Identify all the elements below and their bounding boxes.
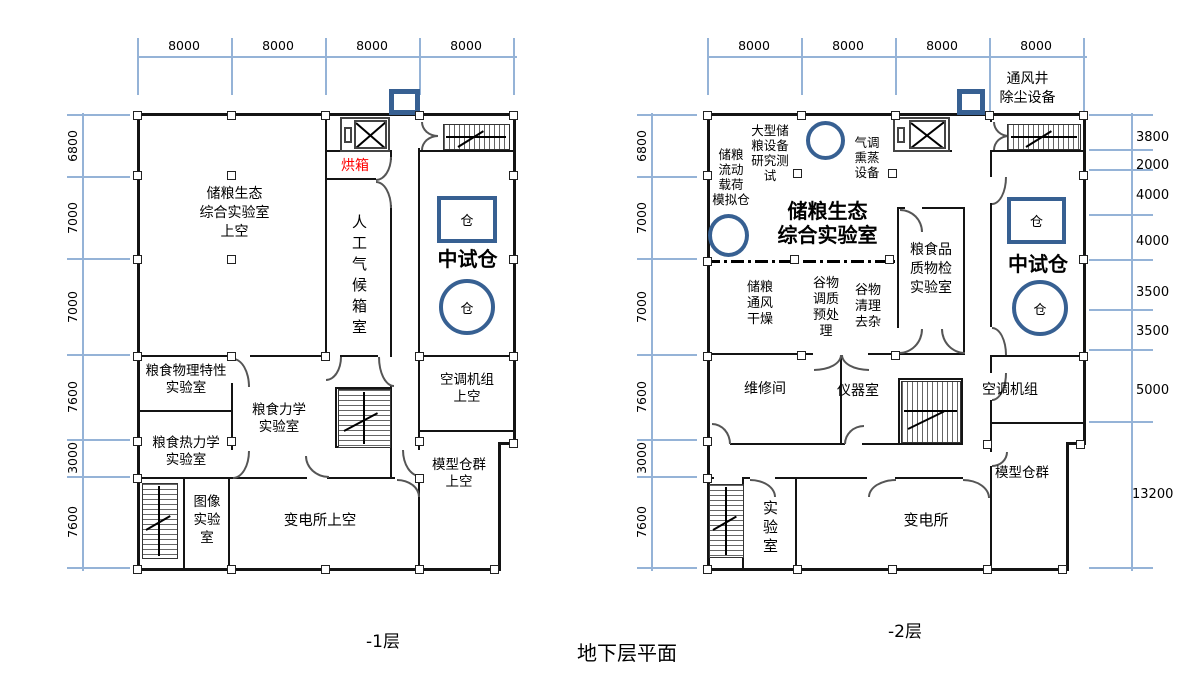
column-marker — [703, 257, 712, 266]
plan-minus-2: 8000 8000 8000 8000 6800 7000 7000 7600 … — [0, 0, 1195, 682]
right-dim-label: 5000 — [1136, 383, 1188, 398]
room-label-vent-shaft: 通风井 除尘设备 — [975, 70, 1080, 108]
room-label-hvac: 空调机组 — [968, 382, 1052, 399]
dimension-line — [1131, 113, 1133, 571]
wall — [922, 207, 965, 209]
door-arc — [941, 329, 965, 354]
right-dim-label: 2000 — [1136, 158, 1188, 173]
wall — [730, 443, 845, 445]
column-marker — [1076, 440, 1085, 449]
column-marker — [793, 169, 802, 178]
dimension-tick — [1089, 567, 1153, 569]
door-arc — [844, 425, 864, 444]
stairs-icon — [709, 484, 744, 558]
column-marker — [1058, 565, 1067, 574]
wall — [868, 353, 965, 355]
room-label-instrument: 仪器室 — [826, 383, 890, 400]
caption-floor-minus-2: -2层 — [865, 617, 945, 642]
column-marker — [1079, 171, 1088, 180]
wall — [990, 150, 992, 177]
room-label-flow-load-silo: 储粮 流动 载荷 模拟仓 — [710, 147, 752, 207]
room-label-large-equipment: 大型储 粮设备 研究测 试 — [746, 123, 794, 183]
wall — [961, 378, 963, 445]
room-label-quality-inspection: 粮食品 质物检 实验室 — [903, 241, 959, 298]
dimension-line — [707, 56, 1087, 58]
wall — [895, 477, 963, 479]
column-marker — [1079, 352, 1088, 361]
right-dim-label: 4000 — [1136, 234, 1188, 249]
column-marker — [703, 437, 712, 446]
left-dim-label: 7600 — [635, 375, 649, 419]
room-label-pilot-silo: 中试仓 — [993, 252, 1083, 276]
floor-plan-drawing: 8000 8000 8000 8000 6800 7000 7000 7600 … — [0, 0, 1195, 682]
column-marker — [888, 565, 897, 574]
dimension-tick — [1089, 421, 1153, 423]
left-dim-label: 7000 — [635, 285, 649, 329]
dimension-tick — [801, 38, 803, 95]
column-marker — [703, 565, 712, 574]
column-marker — [703, 474, 712, 483]
top-dim-label: 8000 — [1006, 38, 1066, 53]
top-dim-label: 8000 — [912, 38, 972, 53]
dimension-tick — [637, 114, 697, 116]
equipment-circle — [708, 214, 749, 257]
left-dim-label: 6800 — [635, 124, 649, 168]
wall — [990, 355, 1086, 357]
dimension-tick — [1083, 38, 1085, 115]
stair-rail — [904, 410, 957, 412]
wall — [795, 477, 797, 568]
room-label-model-silos: 模型仓群 — [980, 465, 1064, 482]
room-label-lab: 实验室 — [760, 496, 781, 560]
top-dim-label: 8000 — [724, 38, 784, 53]
dimension-tick — [637, 354, 697, 356]
door-arc — [841, 355, 869, 371]
stairs-icon — [901, 381, 961, 443]
door-arc — [750, 479, 776, 497]
dimension-tick — [1089, 114, 1153, 116]
column-marker — [1079, 111, 1088, 120]
door-arc — [814, 355, 842, 371]
column-marker — [885, 255, 894, 264]
room-label-substation: 变电所 — [884, 512, 968, 529]
dashdot-partition-line — [707, 260, 899, 263]
right-dim-label: 13200 — [1132, 487, 1184, 502]
door-arc — [992, 177, 1007, 205]
column-marker — [983, 440, 992, 449]
wall — [898, 378, 900, 445]
room-label-ventilation-drying: 储粮 通风 干燥 — [741, 280, 779, 328]
wall — [1083, 113, 1086, 445]
room-label-grain-conditioning: 谷物 调质 预处 理 — [807, 276, 845, 340]
left-dim-label: 3000 — [635, 436, 649, 480]
door-arc — [712, 423, 731, 444]
room-label-fumigation: 气调 熏蒸 设备 — [849, 135, 885, 180]
elevator-icon — [893, 117, 950, 152]
dimension-tick — [637, 567, 697, 569]
room-label-grain-cleaning: 谷物 清理 去杂 — [849, 283, 887, 331]
wall — [1066, 442, 1069, 571]
wall — [990, 203, 992, 327]
dimension-tick — [1089, 349, 1153, 351]
column-marker — [790, 255, 799, 264]
column-marker — [703, 352, 712, 361]
dimension-tick — [1089, 214, 1153, 216]
dimension-tick — [707, 38, 709, 95]
column-marker — [891, 111, 900, 120]
dimension-tick — [637, 258, 697, 260]
wall — [898, 378, 961, 380]
silo-label: 仓 — [1030, 211, 1043, 230]
silo-circle: 仓 — [1012, 280, 1068, 336]
column-marker — [983, 565, 992, 574]
wall — [990, 400, 992, 443]
left-dim-label: 7600 — [635, 500, 649, 544]
wall — [775, 477, 867, 479]
wall — [862, 443, 963, 445]
column-marker — [797, 351, 806, 360]
room-label-maintenance: 维修间 — [723, 381, 807, 398]
top-dim-label: 8000 — [818, 38, 878, 53]
column-marker — [793, 565, 802, 574]
right-dim-label: 3800 — [1136, 130, 1188, 145]
wall — [990, 355, 992, 373]
column-marker — [703, 111, 712, 120]
dimension-tick — [1089, 149, 1153, 151]
door-arc — [992, 327, 1007, 355]
silo-square: 仓 — [1007, 197, 1066, 244]
right-dim-label: 3500 — [1136, 285, 1188, 300]
column-marker — [888, 169, 897, 178]
dimension-tick — [1089, 309, 1153, 311]
dimension-tick — [895, 38, 897, 95]
wall — [990, 422, 1086, 424]
right-dim-label: 4000 — [1136, 188, 1188, 203]
dimension-tick — [1089, 259, 1153, 261]
stair-arrow — [908, 411, 945, 430]
dimension-line — [651, 113, 653, 571]
elevator-cab — [909, 120, 946, 149]
stair-arrow — [1025, 130, 1052, 148]
elevator-handle — [897, 127, 905, 143]
door-arc — [868, 479, 896, 497]
right-dim-label: 3500 — [1136, 324, 1188, 339]
wall — [990, 150, 1086, 152]
column-marker — [891, 351, 900, 360]
page-title: 地下层平面 — [527, 637, 727, 666]
column-marker — [985, 111, 994, 120]
silo-label: 仓 — [1033, 299, 1046, 318]
equipment-circle — [806, 121, 845, 160]
dimension-tick — [637, 176, 697, 178]
stairs-icon — [1007, 124, 1081, 150]
left-dim-label: 7000 — [635, 196, 649, 240]
door-arc — [899, 329, 923, 354]
column-marker — [797, 111, 806, 120]
room-label-grain-ecology: 储粮生态 综合实验室 — [745, 199, 910, 247]
